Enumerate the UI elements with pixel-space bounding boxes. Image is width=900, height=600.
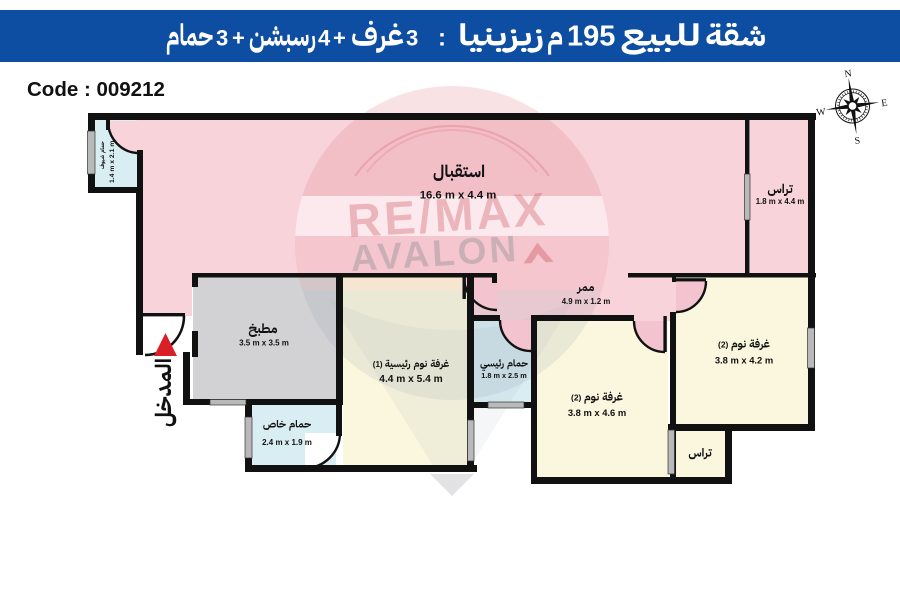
svg-text:3: 3 — [406, 26, 418, 51]
svg-text:195: 195 — [567, 21, 615, 53]
svg-text:1.8 m x 4.4 m: 1.8 m x 4.4 m — [756, 197, 805, 206]
svg-text:3: 3 — [216, 26, 228, 51]
svg-text:W: W — [816, 106, 827, 118]
svg-text:N: N — [844, 68, 853, 80]
svg-text:(1): (1) — [373, 360, 383, 369]
svg-text:3.8 m x 4.2 m: 3.8 m x 4.2 m — [715, 355, 773, 366]
svg-text:(2): (2) — [571, 393, 582, 403]
svg-text:S: S — [854, 135, 861, 147]
svg-text:(2): (2) — [718, 340, 729, 350]
svg-text:4.9 m x 1.2 m: 4.9 m x 1.2 m — [562, 297, 611, 306]
svg-text:E: E — [881, 98, 889, 110]
svg-text:+: + — [232, 26, 245, 51]
svg-text:2.4 m x 1.9 m: 2.4 m x 1.9 m — [262, 438, 312, 447]
svg-text:3.5 m x 3.5 m: 3.5 m x 3.5 m — [239, 339, 289, 348]
svg-text:4.4 m x 5.4 m: 4.4 m x 5.4 m — [379, 374, 442, 385]
svg-text::: : — [438, 25, 446, 52]
svg-text:+: + — [333, 26, 346, 51]
svg-text:1.4 m x 2.1 m: 1.4 m x 2.1 m — [109, 141, 116, 183]
svg-text:16.6 m x 4.4 m: 16.6 m x 4.4 m — [420, 190, 497, 202]
svg-text:1.8 m x 2.5 m: 1.8 m x 2.5 m — [481, 371, 527, 380]
svg-text:3.8 m x 4.6 m: 3.8 m x 4.6 m — [568, 407, 626, 418]
svg-text:4: 4 — [318, 26, 331, 51]
svg-text:Code : 009212: Code : 009212 — [27, 78, 165, 101]
